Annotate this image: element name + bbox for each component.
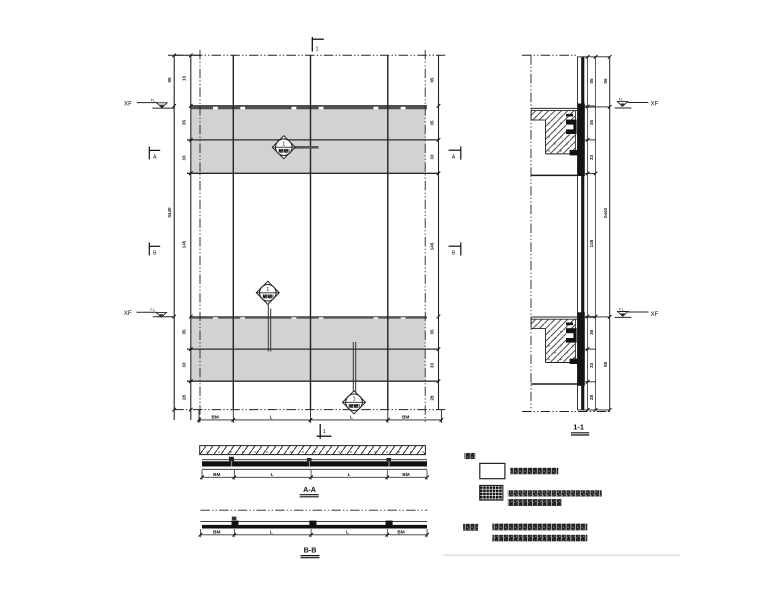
svg-text:L: L [346,530,349,535]
svg-text:L: L [270,415,273,420]
svg-text:F.L: F.L [150,308,155,312]
svg-text:05: 05 [167,77,172,83]
svg-text:BM: BM [402,472,409,477]
svg-text:XF: XF [651,311,659,318]
svg-text:33: 33 [429,363,434,369]
svg-text:1: 1 [316,47,319,53]
svg-text:05: 05 [429,77,434,83]
svg-text:33: 33 [589,362,594,368]
svg-text:08: 08 [603,362,608,368]
svg-text:28: 28 [182,395,187,401]
svg-text:06: 06 [603,78,608,84]
svg-text:A-A: A-A [303,485,316,494]
svg-text:XF: XF [124,310,132,317]
svg-text:145: 145 [182,240,187,248]
svg-text:A: A [452,155,456,161]
svg-text:BM: BM [402,415,409,420]
svg-text:BM: BM [213,472,220,477]
svg-text:33: 33 [429,154,434,160]
svg-text:13: 13 [182,76,187,82]
svg-text:145: 145 [589,239,594,247]
svg-text:1: 1 [282,141,285,147]
svg-text:33: 33 [182,362,187,368]
svg-text:F.L: F.L [619,97,624,101]
svg-text:28: 28 [589,395,594,401]
svg-text:A: A [153,155,157,161]
svg-text:35: 35 [182,329,187,335]
svg-text:35: 35 [429,120,434,126]
svg-text:BM: BM [212,415,219,420]
svg-text:B: B [452,250,456,256]
svg-text:35: 35 [182,120,187,126]
svg-text:33: 33 [182,155,187,161]
svg-text:L: L [350,415,353,420]
svg-text:XF: XF [651,101,659,108]
svg-text:0440: 0440 [167,207,172,218]
svg-text:05: 05 [589,78,594,84]
svg-text:145: 145 [429,242,434,250]
svg-text:L: L [271,472,274,477]
svg-text:35: 35 [589,120,594,126]
svg-text:33: 33 [589,155,594,161]
svg-text:35: 35 [589,329,594,335]
svg-text:1: 1 [266,287,269,293]
svg-text:L: L [348,472,351,477]
svg-text:BM: BM [213,530,220,535]
svg-text:35: 35 [429,329,434,335]
svg-text:F.L: F.L [151,98,156,102]
svg-text:1: 1 [353,397,356,403]
svg-text:F.L: F.L [619,307,624,311]
svg-text:XF: XF [124,100,132,107]
svg-text:28: 28 [429,395,434,401]
svg-text:B-B: B-B [304,546,317,555]
svg-text:0440: 0440 [603,207,608,218]
svg-text:BM: BM [397,530,404,535]
svg-text:1: 1 [323,429,326,435]
svg-text:L: L [270,530,273,535]
svg-text:B: B [153,251,157,257]
svg-text:1-1: 1-1 [573,422,584,431]
